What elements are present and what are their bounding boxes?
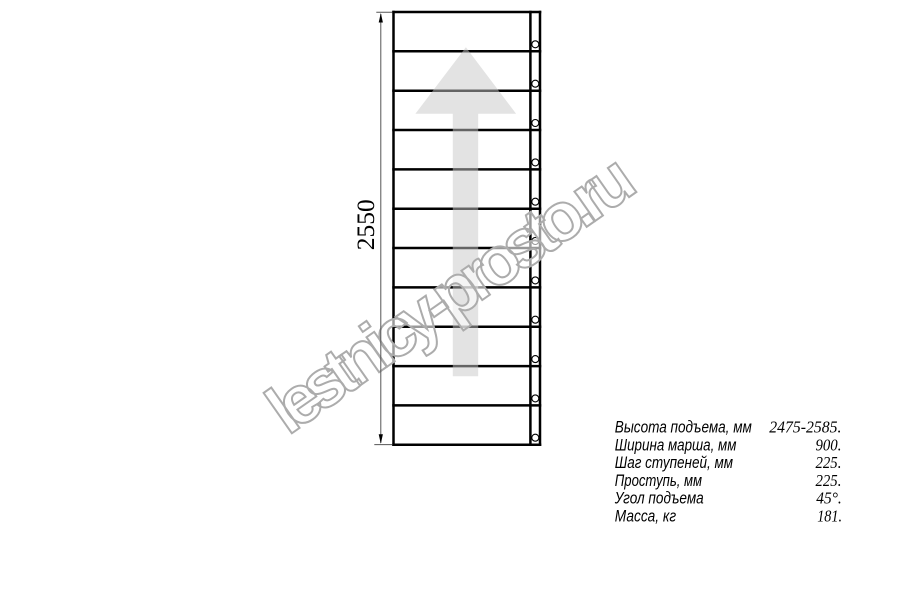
svg-text:2550: 2550 [351,199,380,250]
svg-text:900.: 900. [816,436,842,455]
svg-text:Высота подъема, мм: Высота подъема, мм [615,419,752,437]
svg-text:Ширина марша, мм: Ширина марша, мм [615,437,737,455]
svg-text:Шаг ступеней, мм: Шаг ступеней, мм [615,454,733,472]
svg-text:181.: 181. [817,507,842,526]
svg-text:2475-2585.: 2475-2585. [769,418,841,437]
svg-text:45°.: 45°. [816,489,842,508]
svg-text:225.: 225. [816,471,842,490]
svg-text:Масса, кг: Масса, кг [615,508,676,526]
svg-text:Угол подъема: Угол подъема [614,490,704,508]
svg-text:225.: 225. [816,453,842,472]
svg-text:Проступь, мм: Проступь, мм [615,472,702,490]
